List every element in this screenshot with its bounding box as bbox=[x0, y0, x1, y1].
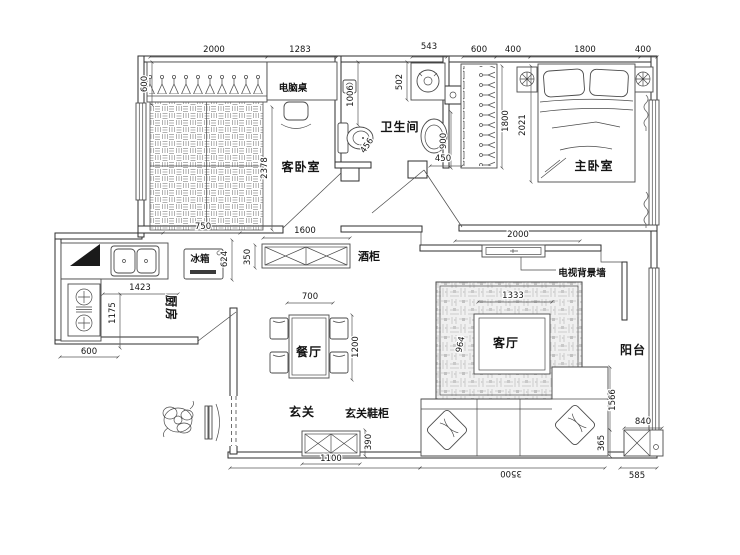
dim-top-nightstand-right: 400 bbox=[635, 45, 651, 55]
furniture-label-fridge: 冰箱 bbox=[190, 253, 210, 265]
dim-entry-shoe-cabinet-width: 1100 bbox=[320, 454, 342, 464]
furniture-label-shoe-cabinet: 玄关鞋柜 bbox=[345, 406, 389, 420]
wall-west-step bbox=[55, 233, 142, 239]
desk-chair bbox=[281, 102, 311, 129]
wall-bath-south bbox=[335, 162, 371, 168]
plant-icon bbox=[163, 401, 194, 437]
dim-top-wardrobe: 600 bbox=[471, 45, 487, 55]
dim-hall-fridge-width: 624 bbox=[220, 251, 230, 267]
wall-hall-south bbox=[341, 226, 422, 232]
pillow-icon bbox=[589, 69, 628, 97]
dim-entry-shoe-cabinet-depth: 390 bbox=[364, 434, 374, 450]
tv-console-icon bbox=[482, 245, 545, 257]
pillow-icon bbox=[543, 69, 585, 98]
dim-left-guest-depth: 2378 bbox=[260, 157, 270, 179]
dim-kitchen-depth: 1175 bbox=[108, 302, 118, 324]
dim-top-nightstand-left: 400 bbox=[505, 45, 521, 55]
furniture-label-tv-wall: 电视背景墙 bbox=[558, 267, 606, 279]
dim-kitchen-width: 1423 bbox=[129, 283, 151, 293]
dim-top-bed-width: 1800 bbox=[574, 45, 596, 55]
door-master-bedroom bbox=[424, 170, 462, 227]
wall-pivot-block bbox=[445, 86, 461, 104]
dim-top-guest-width: 2000 bbox=[203, 45, 225, 55]
curtain-icon bbox=[644, 192, 648, 228]
dim-balcony-cabinet-width: 840 bbox=[635, 417, 651, 427]
dim-living-rug-width: 1333 bbox=[502, 291, 524, 301]
dim-bath-door: 450 bbox=[435, 154, 451, 164]
dim-living-sofa-side: 365 bbox=[597, 435, 607, 451]
room-label-bathroom: 卫生间 bbox=[380, 119, 419, 134]
dim-living-sofa-depth: 1566 bbox=[608, 389, 618, 411]
balcony-cabinet bbox=[624, 430, 663, 456]
room-label-entry: 玄关 bbox=[289, 404, 315, 419]
room-label-balcony: 阳台 bbox=[620, 342, 646, 357]
door-guest-bedroom bbox=[283, 173, 341, 228]
bathroom-fixtures bbox=[338, 63, 447, 153]
dim-master-bed-length: 2021 bbox=[518, 114, 528, 136]
dim-bath-basin: 900 bbox=[439, 133, 449, 149]
room-label-living: 客厅 bbox=[492, 335, 519, 350]
dim-bath-shower: 1006 bbox=[346, 85, 356, 107]
hanger-icons bbox=[149, 64, 265, 94]
dim-master-wardrobe-height: 1800 bbox=[501, 110, 511, 132]
curtain-icon bbox=[644, 95, 648, 131]
nightstand-right bbox=[633, 67, 653, 92]
master-bedroom bbox=[461, 64, 653, 182]
tv-wall-leader-line bbox=[521, 257, 556, 270]
kitchen-sink-icon bbox=[111, 246, 159, 276]
dim-left-bed-segment: 750 bbox=[195, 222, 211, 232]
dim-top-desk-width: 1283 bbox=[289, 45, 311, 55]
dim-hall-wine-depth: 350 bbox=[243, 249, 253, 265]
room-label-guest-bedroom: 客卧室 bbox=[280, 159, 320, 174]
entry-area bbox=[163, 401, 360, 456]
dim-left-closet-depth: 600 bbox=[140, 76, 150, 92]
dim-dining-table-width: 700 bbox=[302, 292, 318, 302]
dim-hall-wine-width: 1600 bbox=[294, 226, 316, 236]
dim-counter-depth: 600 bbox=[81, 347, 97, 357]
door-entry-opening bbox=[229, 396, 238, 446]
wall-master-south bbox=[459, 225, 657, 231]
window-master-east bbox=[649, 100, 659, 225]
dining-chair bbox=[330, 352, 348, 373]
stove-icon bbox=[68, 284, 100, 336]
dim-bath-washer: 502 bbox=[395, 74, 405, 90]
dining-chair bbox=[270, 352, 288, 373]
dim-dining-table-length: 1200 bbox=[351, 336, 361, 358]
room-label-kitchen: 厨房 bbox=[164, 295, 179, 321]
dim-top-bath-nook: 543 bbox=[421, 42, 437, 52]
floor-plan-canvas: 2000 1283 543 600 400 1800 400 600 2378 … bbox=[0, 0, 740, 555]
room-label-dining: 餐厅 bbox=[296, 344, 322, 359]
window-guest-west bbox=[136, 103, 146, 200]
wine-cabinet bbox=[262, 244, 350, 268]
computer-desk bbox=[267, 62, 337, 100]
dining-chair bbox=[330, 318, 348, 339]
nightstand-left bbox=[517, 67, 537, 92]
wall-balcony-divider bbox=[622, 262, 627, 320]
dining-chair bbox=[270, 318, 288, 339]
wall-tv-step bbox=[601, 251, 622, 262]
door-bathroom bbox=[372, 170, 424, 213]
shoe-cabinet bbox=[302, 431, 360, 456]
room-label-master-bedroom: 主卧室 bbox=[574, 158, 613, 173]
hanger-icons bbox=[463, 66, 495, 166]
dim-living-sofa-wall: 3500 bbox=[500, 468, 522, 478]
dim-living-tv-wall: 2000 bbox=[507, 230, 529, 240]
window-balcony-east bbox=[649, 268, 659, 430]
furniture-label-computer-desk: 电脑桌 bbox=[279, 82, 308, 94]
floor-plan-drawing: 2000 1283 543 600 400 1800 400 600 2378 … bbox=[0, 0, 740, 555]
dim-balcony-cabinet-side: 585 bbox=[629, 471, 645, 481]
washing-machine-icon bbox=[411, 63, 445, 100]
furniture-label-wine-cabinet: 酒柜 bbox=[358, 249, 380, 263]
door-elevation-icon bbox=[205, 404, 220, 441]
wall-kitchen-west bbox=[55, 235, 61, 340]
guest-bedroom bbox=[147, 62, 337, 230]
